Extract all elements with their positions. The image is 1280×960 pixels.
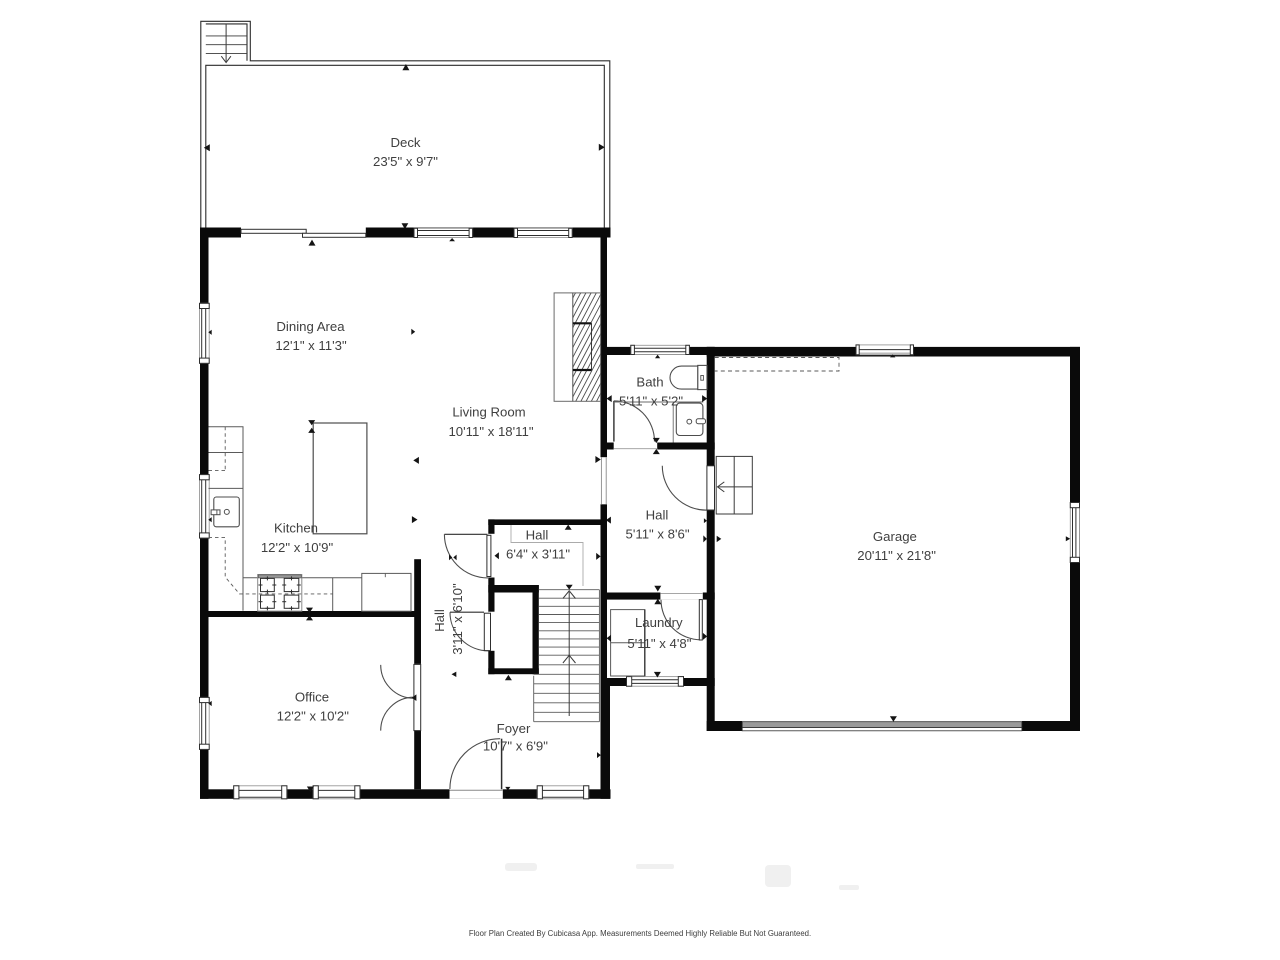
svg-text:Floor Plan Created By Cubicasa: Floor Plan Created By Cubicasa App. Meas… (469, 929, 811, 938)
svg-text:Garage: Garage (873, 529, 917, 544)
svg-text:Kitchen: Kitchen (274, 520, 318, 535)
svg-text:Deck: Deck (390, 135, 420, 150)
svg-text:5'11" x 8'6": 5'11" x 8'6" (625, 526, 689, 541)
svg-text:10'11" x 18'11": 10'11" x 18'11" (448, 424, 533, 439)
svg-text:3'11" x 6'10": 3'11" x 6'10" (450, 583, 465, 655)
svg-text:Hall: Hall (432, 609, 447, 632)
svg-text:6'4" x 3'11": 6'4" x 3'11" (506, 546, 570, 561)
svg-text:12'2" x 10'2": 12'2" x 10'2" (277, 708, 350, 723)
svg-text:Dining Area: Dining Area (276, 319, 345, 334)
svg-text:Foyer: Foyer (497, 721, 531, 736)
svg-text:23'5" x 9'7": 23'5" x 9'7" (373, 154, 438, 169)
svg-text:5'11" x 4'8": 5'11" x 4'8" (627, 636, 691, 651)
svg-text:12'1" x 11'3": 12'1" x 11'3" (275, 338, 347, 353)
svg-text:Hall: Hall (646, 508, 669, 523)
svg-text:20'11" x 21'8": 20'11" x 21'8" (857, 548, 936, 563)
svg-text:Bath: Bath (636, 374, 663, 389)
svg-text:Laundry: Laundry (635, 615, 683, 630)
svg-text:10'7" x 6'9": 10'7" x 6'9" (483, 738, 548, 753)
svg-text:5'11" x 5'2": 5'11" x 5'2" (619, 393, 683, 408)
svg-text:Office: Office (295, 689, 329, 704)
svg-text:12'2" x 10'9": 12'2" x 10'9" (261, 540, 334, 555)
svg-text:Living Room: Living Room (452, 404, 525, 419)
svg-text:Hall: Hall (526, 527, 549, 542)
